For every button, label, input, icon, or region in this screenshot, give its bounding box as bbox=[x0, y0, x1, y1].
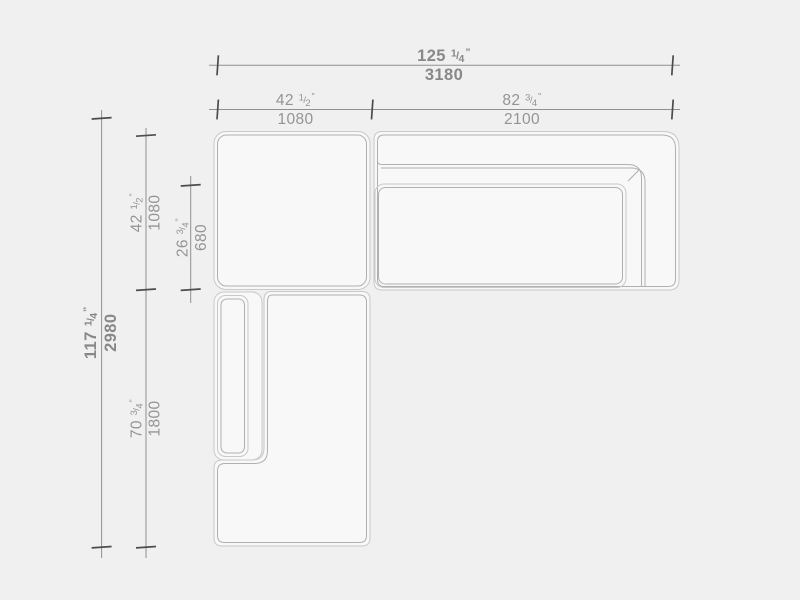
svg-text:2980: 2980 bbox=[102, 314, 120, 352]
svg-text:1080: 1080 bbox=[277, 111, 313, 128]
svg-text:2100: 2100 bbox=[504, 111, 540, 128]
svg-text:1800: 1800 bbox=[146, 400, 163, 436]
svg-text:680: 680 bbox=[193, 224, 210, 251]
svg-text:3180: 3180 bbox=[425, 66, 463, 84]
svg-text:1080: 1080 bbox=[146, 195, 163, 231]
